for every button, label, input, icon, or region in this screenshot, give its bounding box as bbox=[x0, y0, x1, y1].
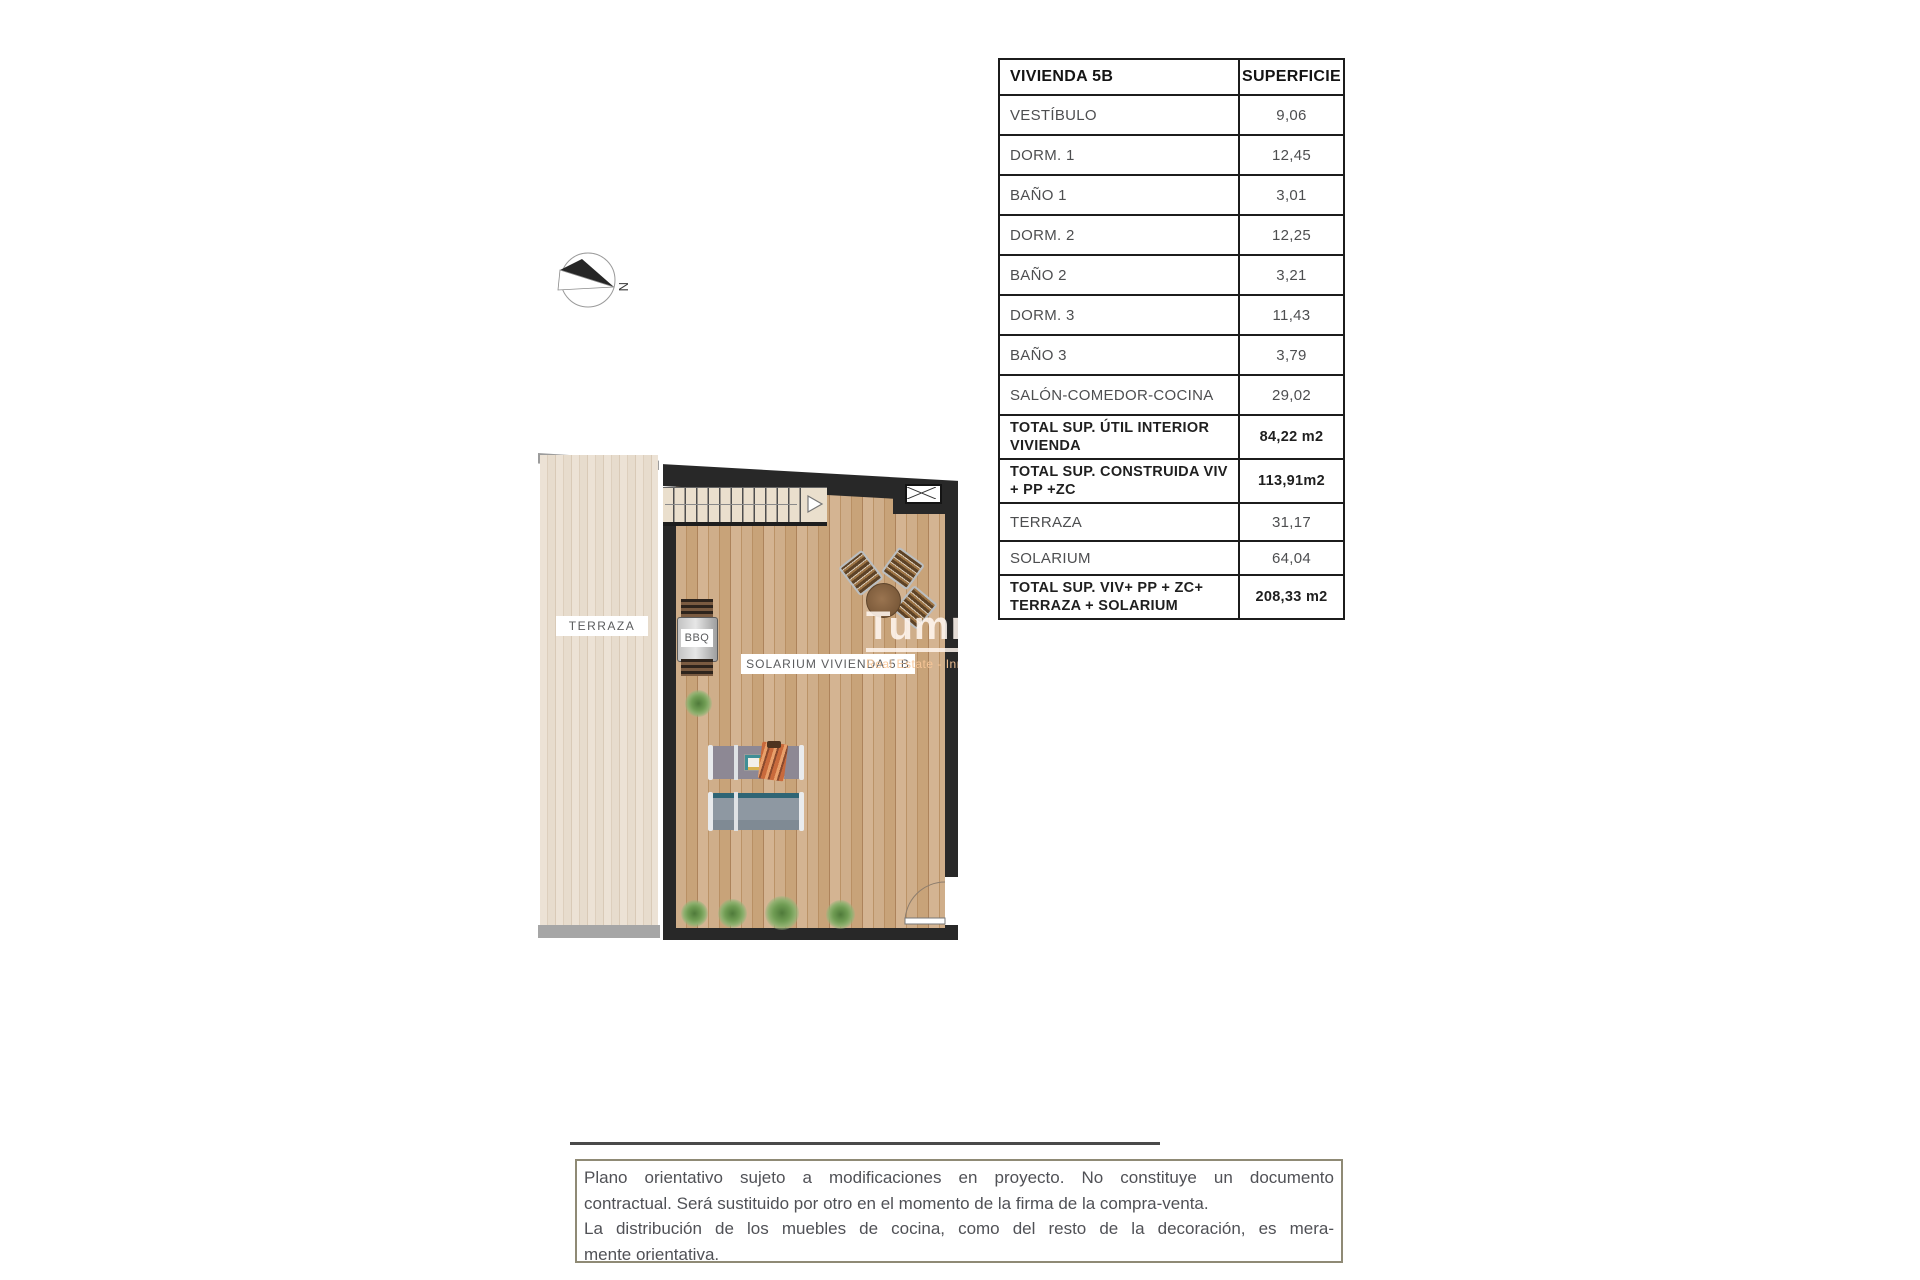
row-label: TERRAZA bbox=[999, 503, 1239, 541]
surface-table: VIVIENDA 5B SUPERFICIE VESTÍBULO 9,06 DO… bbox=[998, 58, 1345, 620]
table-row: SALÓN-COMEDOR-COCINA 29,02 bbox=[999, 375, 1344, 415]
row-value: 31,17 bbox=[1239, 503, 1344, 541]
stair-direction-line bbox=[665, 504, 797, 505]
disclaimer-line: mente orientativa. bbox=[584, 1242, 1334, 1268]
disclaimer-line: La distribución de los muebles de cocina… bbox=[584, 1216, 1334, 1242]
plant bbox=[765, 896, 799, 930]
lounger-frame-bar bbox=[734, 792, 738, 831]
row-label: SALÓN-COMEDOR-COCINA bbox=[999, 375, 1239, 415]
wall-right bbox=[945, 490, 958, 940]
row-value: 9,06 bbox=[1239, 95, 1344, 135]
table-row: BAÑO 2 3,21 bbox=[999, 255, 1344, 295]
row-value: 64,04 bbox=[1239, 541, 1344, 575]
row-value: 3,79 bbox=[1239, 335, 1344, 375]
table-row-total: TOTAL SUP. VIV+ PP + ZC+ TERRAZA + SOLAR… bbox=[999, 575, 1344, 619]
table-row-total: TOTAL SUP. ÚTIL INTERIOR VIVIENDA 84,22 … bbox=[999, 415, 1344, 459]
row-label: TOTAL SUP. CONSTRUIDA VIV + PP +ZC bbox=[999, 459, 1239, 503]
skylight-hatch-icon bbox=[905, 484, 942, 504]
wall-left bbox=[663, 520, 676, 940]
row-label: BAÑO 2 bbox=[999, 255, 1239, 295]
table-row: BAÑO 1 3,01 bbox=[999, 175, 1344, 215]
floor-plan: TERRAZA SOLARIUM VIVIENDA 5 B BBQ Tumme … bbox=[538, 450, 958, 945]
bbq-bench-bottom bbox=[681, 659, 713, 676]
plant bbox=[826, 900, 855, 929]
bbq-bench-top bbox=[681, 599, 713, 618]
disclaimer-line: contractual. Será sustituido por otro en… bbox=[584, 1191, 1334, 1217]
table-row: DORM. 1 12,45 bbox=[999, 135, 1344, 175]
compass-n-label: N bbox=[616, 282, 631, 291]
table-row: BAÑO 3 3,79 bbox=[999, 335, 1344, 375]
round-table bbox=[866, 583, 901, 618]
row-label: DORM. 2 bbox=[999, 215, 1239, 255]
terraza-floor bbox=[540, 455, 658, 925]
plant bbox=[685, 690, 712, 717]
table-row: TERRAZA 31,17 bbox=[999, 503, 1344, 541]
stair-arrow-icon bbox=[806, 494, 824, 514]
disclaimer-box: Plano orientativo sujeto a modificacione… bbox=[575, 1159, 1343, 1263]
row-value: 84,22 m2 bbox=[1239, 415, 1344, 459]
sun-lounger bbox=[710, 793, 802, 830]
table-header-name: VIVIENDA 5B bbox=[999, 59, 1239, 95]
solarium-label: SOLARIUM VIVIENDA 5 B bbox=[741, 654, 915, 674]
compass-north-icon: N bbox=[552, 244, 644, 325]
table-header-row: VIVIENDA 5B SUPERFICIE bbox=[999, 59, 1344, 95]
table-row: SOLARIUM 64,04 bbox=[999, 541, 1344, 575]
divider-rule bbox=[570, 1142, 1160, 1145]
row-label: SOLARIUM bbox=[999, 541, 1239, 575]
row-value: 11,43 bbox=[1239, 295, 1344, 335]
row-value: 12,45 bbox=[1239, 135, 1344, 175]
row-value: 12,25 bbox=[1239, 215, 1344, 255]
plant bbox=[681, 900, 708, 927]
row-label: TOTAL SUP. VIV+ PP + ZC+ TERRAZA + SOLAR… bbox=[999, 575, 1239, 619]
row-label: VESTÍBULO bbox=[999, 95, 1239, 135]
plant bbox=[718, 899, 747, 928]
lounger-frame-bar bbox=[734, 745, 738, 780]
terraza-label: TERRAZA bbox=[556, 616, 648, 636]
row-label: DORM. 1 bbox=[999, 135, 1239, 175]
row-label: BAÑO 1 bbox=[999, 175, 1239, 215]
terraza-bottom-wall bbox=[538, 925, 660, 938]
table-row: DORM. 2 12,25 bbox=[999, 215, 1344, 255]
stairs bbox=[663, 487, 827, 526]
table-row: DORM. 3 11,43 bbox=[999, 295, 1344, 335]
pillow bbox=[767, 741, 781, 748]
row-label: TOTAL SUP. ÚTIL INTERIOR VIVIENDA bbox=[999, 415, 1239, 459]
row-value: 29,02 bbox=[1239, 375, 1344, 415]
table-row: VESTÍBULO 9,06 bbox=[999, 95, 1344, 135]
row-label: BAÑO 3 bbox=[999, 335, 1239, 375]
row-value: 3,21 bbox=[1239, 255, 1344, 295]
door-swing-icon bbox=[900, 878, 952, 930]
row-value: 113,91m2 bbox=[1239, 459, 1344, 503]
bbq-label: BBQ bbox=[681, 629, 713, 647]
row-value: 208,33 m2 bbox=[1239, 575, 1344, 619]
disclaimer-line: Plano orientativo sujeto a modificacione… bbox=[584, 1165, 1334, 1191]
table-header-value: SUPERFICIE bbox=[1239, 59, 1344, 95]
table-row-total: TOTAL SUP. CONSTRUIDA VIV + PP +ZC 113,9… bbox=[999, 459, 1344, 503]
row-label: DORM. 3 bbox=[999, 295, 1239, 335]
sun-lounger bbox=[710, 746, 802, 779]
row-value: 3,01 bbox=[1239, 175, 1344, 215]
